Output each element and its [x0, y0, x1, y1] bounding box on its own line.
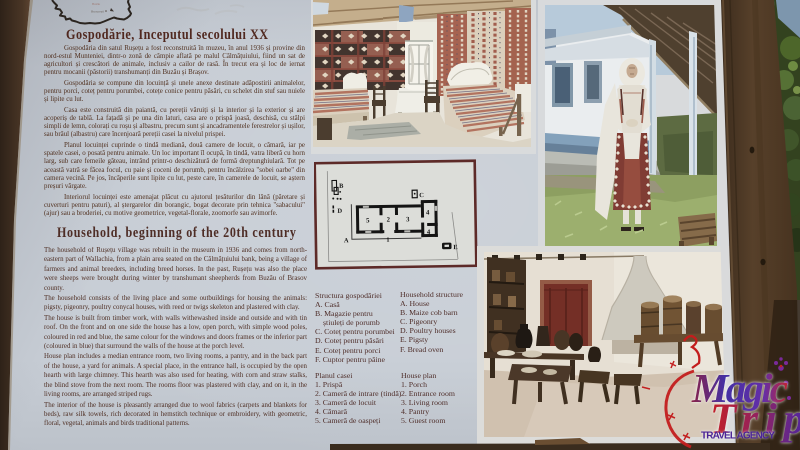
svg-text:E: E — [453, 244, 457, 251]
svg-text:1: 1 — [386, 237, 389, 244]
svg-text:A: A — [344, 237, 349, 244]
svg-text:Buzău: Buzău — [92, 2, 101, 6]
svg-text:TRAVEL AGENCY: TRAVEL AGENCY — [701, 431, 775, 442]
svg-text:București: București — [91, 10, 104, 14]
svg-text:D: D — [337, 208, 342, 215]
svg-text:C: C — [419, 192, 424, 199]
